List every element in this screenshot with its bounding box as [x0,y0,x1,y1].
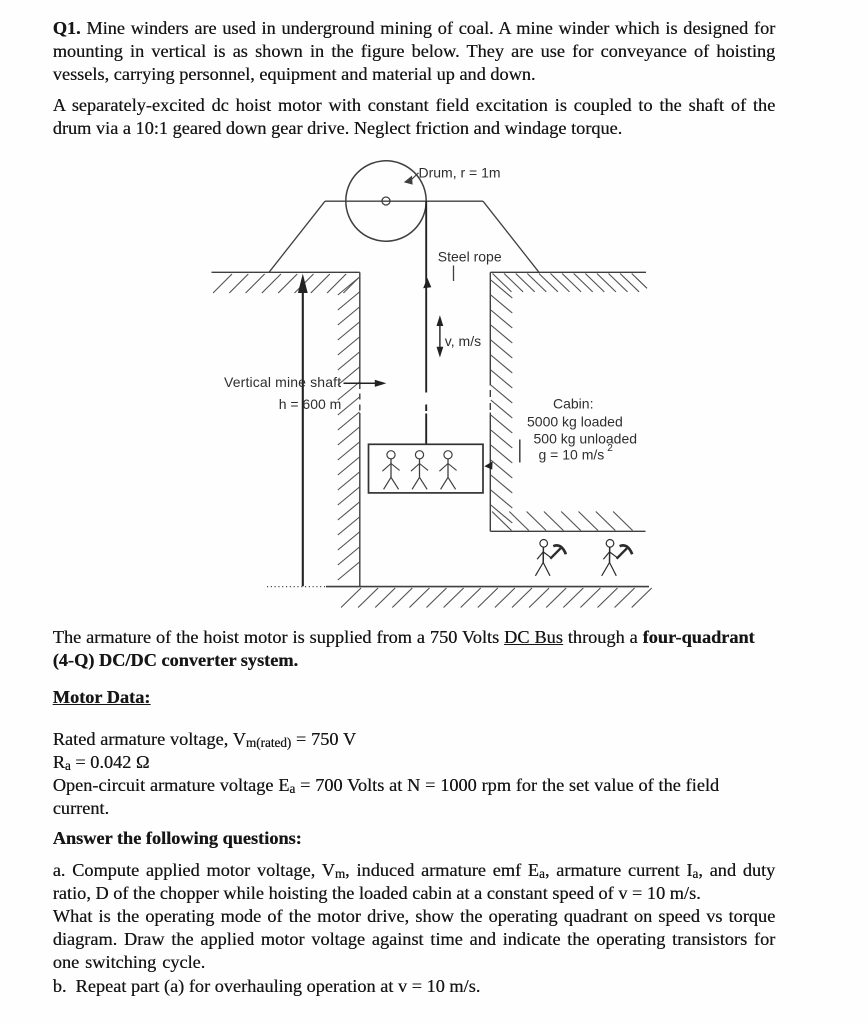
svg-text:Vertical mine shaft: Vertical mine shaft [224,374,341,390]
svg-text:5000 kg loaded: 5000 kg loaded [527,413,623,429]
svg-text:Drum, r = 1m: Drum, r = 1m [419,164,501,180]
svg-text:500 kg unloaded: 500 kg unloaded [534,431,638,447]
svg-text:g = 10 m/s: g = 10 m/s [539,446,605,462]
svg-text:2: 2 [607,443,613,454]
svg-text:Cabin:: Cabin: [553,396,593,412]
svg-text:Steel rope: Steel rope [438,248,502,264]
svg-text:h = 600 m: h = 600 m [279,396,342,412]
svg-text:v, m/s: v, m/s [445,333,481,349]
